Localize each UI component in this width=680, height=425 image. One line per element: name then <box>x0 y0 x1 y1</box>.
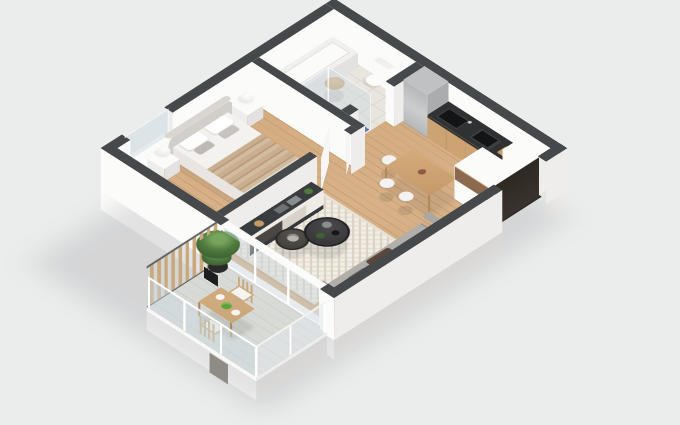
plate-2 <box>229 308 242 316</box>
table-decor-dark <box>330 229 341 236</box>
sideboard-plant <box>302 187 315 195</box>
table2-decor <box>285 232 302 243</box>
faucet <box>467 120 473 124</box>
render-canvas <box>0 0 680 425</box>
apartment-floor-plan <box>9 38 568 397</box>
table-decor-bowl <box>320 220 334 229</box>
table-decor-plant <box>314 232 327 240</box>
plate-1 <box>214 293 227 301</box>
fruit-bowl <box>219 301 235 311</box>
flower-vase <box>416 168 427 175</box>
